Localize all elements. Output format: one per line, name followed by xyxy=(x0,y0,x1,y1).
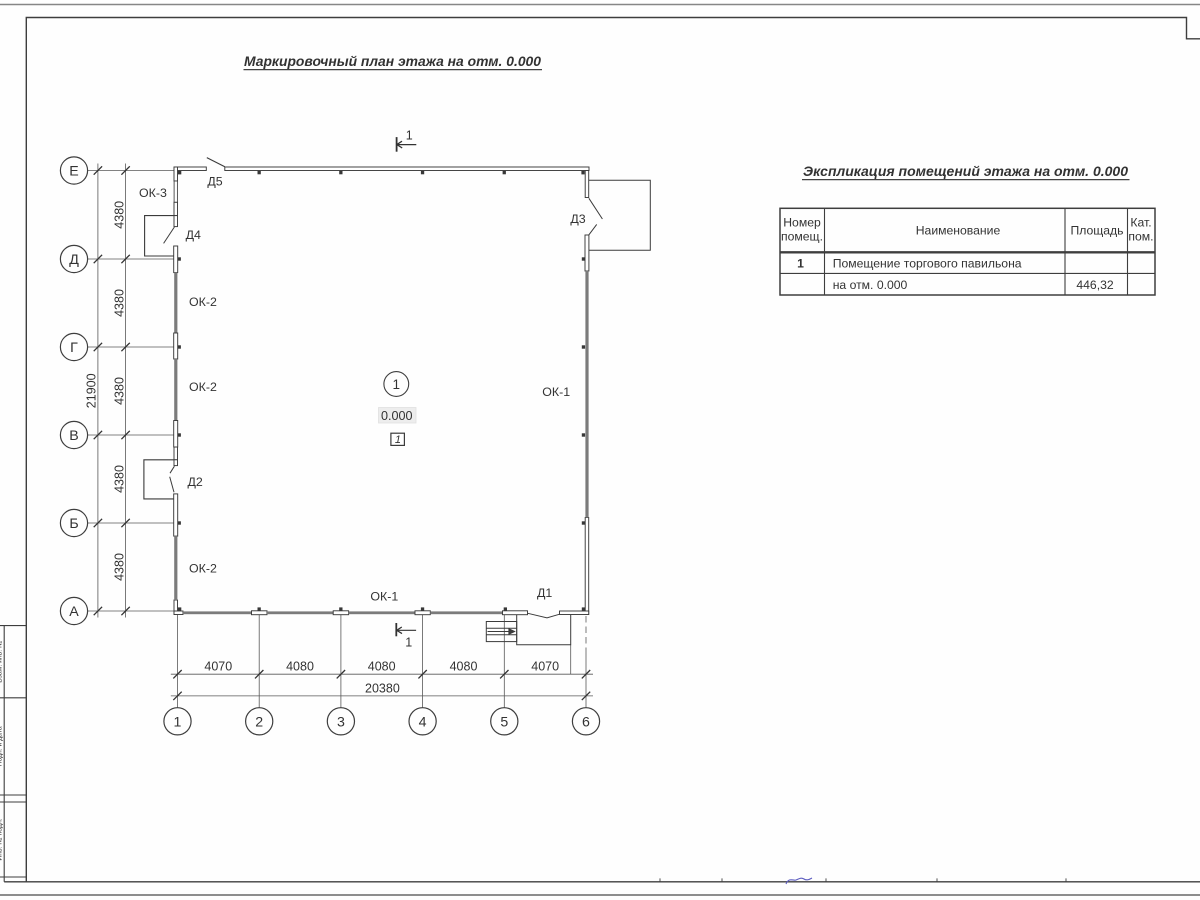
svg-text:4070: 4070 xyxy=(204,660,232,674)
svg-text:4380: 4380 xyxy=(112,289,126,317)
svg-text:пом.: пом. xyxy=(1128,230,1153,244)
svg-text:4: 4 xyxy=(419,714,427,730)
svg-text:5: 5 xyxy=(500,714,508,730)
svg-text:Помещение торгового павильона: Помещение торгового павильона xyxy=(833,256,1022,270)
svg-text:1: 1 xyxy=(393,377,401,392)
svg-text:1: 1 xyxy=(405,636,412,650)
svg-text:4380: 4380 xyxy=(112,377,126,405)
svg-text:Взам. инв. №: Взам. инв. № xyxy=(0,641,4,683)
svg-text:Экспликация помещений этажа на: Экспликация помещений этажа на отм. 0.00… xyxy=(803,163,1128,179)
svg-text:ОК-2: ОК-2 xyxy=(189,295,217,309)
svg-text:ОК-3: ОК-3 xyxy=(139,186,167,200)
svg-text:1: 1 xyxy=(797,256,804,270)
svg-text:Д2: Д2 xyxy=(188,475,203,489)
svg-text:2: 2 xyxy=(255,714,263,730)
svg-text:Номер: Номер xyxy=(783,216,821,230)
svg-text:21900: 21900 xyxy=(85,373,99,408)
svg-text:ОК-1: ОК-1 xyxy=(542,385,570,399)
svg-text:Д4: Д4 xyxy=(186,228,201,242)
svg-text:1: 1 xyxy=(406,128,413,142)
svg-text:4380: 4380 xyxy=(112,553,126,581)
svg-text:Д: Д xyxy=(69,252,79,268)
svg-text:ОК-1: ОК-1 xyxy=(370,590,398,604)
svg-text:0.000: 0.000 xyxy=(381,409,413,423)
svg-text:Кат.: Кат. xyxy=(1130,216,1151,230)
svg-text:Маркировочный план этажа на от: Маркировочный план этажа на отм. 0.000 xyxy=(244,53,541,69)
svg-text:Д5: Д5 xyxy=(207,175,222,189)
svg-text:помещ.: помещ. xyxy=(781,230,823,244)
svg-text:446,32: 446,32 xyxy=(1076,278,1113,292)
svg-text:4080: 4080 xyxy=(368,660,396,674)
svg-text:4080: 4080 xyxy=(450,660,478,674)
svg-text:4080: 4080 xyxy=(286,660,314,674)
svg-text:Площадь: Площадь xyxy=(1070,224,1123,238)
svg-text:А: А xyxy=(69,604,79,620)
svg-text:Наименование: Наименование xyxy=(916,224,1001,238)
svg-text:ОК-2: ОК-2 xyxy=(189,380,217,394)
svg-text:4070: 4070 xyxy=(531,660,559,674)
svg-text:1: 1 xyxy=(174,714,182,730)
svg-text:4380: 4380 xyxy=(112,201,126,229)
svg-text:ОК-2: ОК-2 xyxy=(189,562,217,576)
svg-text:Инв. № подл.: Инв. № подл. xyxy=(0,818,4,860)
svg-text:Б: Б xyxy=(69,516,78,532)
svg-text:Г: Г xyxy=(70,340,78,356)
svg-text:Подп. и дата: Подп. и дата xyxy=(0,726,4,766)
svg-text:на отм. 0.000: на отм. 0.000 xyxy=(833,278,908,292)
svg-text:Д1: Д1 xyxy=(537,586,552,600)
svg-text:Д3: Д3 xyxy=(570,212,585,226)
svg-text:1: 1 xyxy=(395,434,401,446)
svg-text:В: В xyxy=(69,428,78,444)
svg-text:Е: Е xyxy=(69,164,78,180)
svg-text:3: 3 xyxy=(337,714,345,730)
svg-text:20380: 20380 xyxy=(365,682,400,696)
svg-text:6: 6 xyxy=(582,714,590,730)
svg-text:4380: 4380 xyxy=(112,465,126,493)
